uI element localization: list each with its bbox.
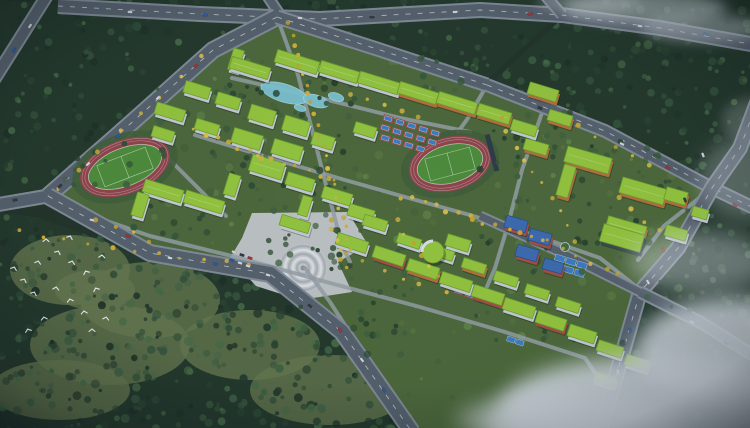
vignette — [0, 0, 750, 428]
aerial-campus-render — [0, 0, 750, 428]
scene-svg — [0, 0, 750, 428]
vignette-layer — [0, 0, 750, 428]
